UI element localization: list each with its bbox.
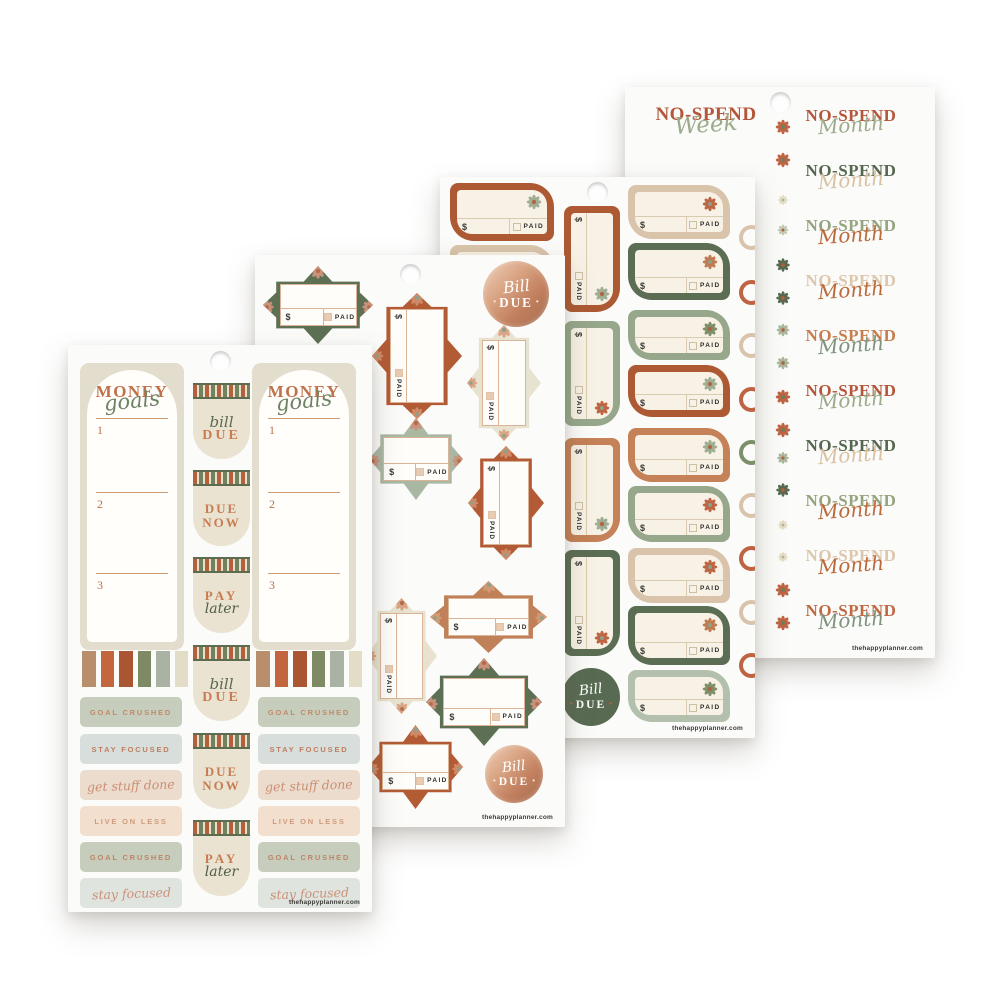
washi-stripe	[293, 651, 307, 687]
price-tag-inner: $PAID	[635, 435, 723, 475]
phrase-label-sticker: get stuff done	[80, 770, 182, 800]
paid-cell: PAID	[686, 395, 723, 410]
flower-icon	[410, 407, 424, 421]
badge-inner: $PAID	[382, 744, 449, 789]
paid-cell: PAID	[686, 460, 723, 475]
dollar-sign: $	[454, 622, 459, 632]
flower-icon	[428, 611, 442, 625]
paid-checkbox	[395, 369, 403, 377]
section-number: 3	[97, 578, 103, 593]
paid-label: PAID	[700, 464, 721, 471]
no-spend-month-sticker: NO-SPENDMonth	[801, 272, 901, 298]
paid-checkbox	[689, 464, 697, 472]
phrase-label-sticker: stay focused	[80, 878, 182, 908]
washi-stripe	[175, 651, 189, 687]
section-number: 3	[269, 578, 275, 593]
paid-checkbox	[689, 647, 697, 655]
brand-url: thehappyplanner.com	[289, 899, 360, 906]
paid-checkbox	[575, 386, 583, 394]
dollar-sign: $	[640, 703, 645, 713]
dollar-sign: $	[389, 467, 394, 477]
paid-group: PAID	[395, 369, 403, 398]
phrase-label-sticker: get stuff done	[258, 770, 360, 800]
dollar-sign: $	[462, 222, 467, 232]
flower-icon	[777, 357, 790, 370]
brand-url: thehappyplanner.com	[482, 814, 553, 821]
paid-group: PAID	[575, 272, 583, 301]
paid-label: PAID	[487, 402, 494, 421]
price-row: $PAID	[635, 580, 723, 596]
no-spend-month-sticker: NO-SPENDMonth	[801, 327, 901, 353]
section-line	[96, 492, 168, 493]
paid-checkbox	[575, 502, 583, 510]
edge-ring-sticker	[739, 493, 755, 518]
paid-label: PAID	[524, 223, 545, 230]
price-tag-vertical: $PAID	[564, 550, 620, 656]
paid-label: PAID	[575, 282, 582, 301]
phrase-label-sticker: STAY FOCUSED	[258, 734, 360, 764]
edge-ring-sticker	[739, 653, 755, 678]
amount-cell: $	[635, 338, 686, 353]
dollar-sign: $	[640, 523, 645, 533]
punch-hole	[770, 92, 791, 113]
mosaic-band	[193, 383, 250, 399]
tab-body: PAYlater	[193, 836, 250, 896]
edge-ring-sticker	[739, 546, 755, 571]
tab-sticker-due-now: DUENOW	[193, 733, 250, 809]
price-tag-inner: $PAID	[635, 677, 723, 715]
no-spend-week-sticker: NO-SPENDWeek	[640, 105, 772, 134]
amount-cell: $	[635, 217, 686, 232]
price-tag-inner: $PAID	[635, 317, 723, 353]
flower-icon	[778, 520, 788, 530]
flower-icon	[499, 548, 513, 562]
paid-cell: PAID	[490, 709, 524, 725]
paid-label: PAID	[385, 675, 392, 694]
tab-sticker-bill-due: billDUE	[193, 645, 250, 721]
price-tag-inner: $PAID	[571, 328, 613, 419]
flower-icon	[452, 454, 466, 468]
paid-group: PAID	[575, 386, 583, 415]
flower-icon	[464, 377, 477, 390]
flower-icon	[776, 423, 791, 438]
paid-checkbox	[513, 223, 521, 231]
price-tag-vertical: $PAID	[564, 438, 620, 542]
bill-due-circle: Bill•DUE•	[483, 261, 549, 327]
price-tag-horizontal: $PAID	[628, 185, 730, 239]
amount-cell: $	[635, 278, 686, 293]
washi-stripe	[101, 651, 115, 687]
badge-tag: $PAID	[372, 293, 462, 419]
price-row: $PAID	[635, 699, 723, 715]
flower-icon	[776, 390, 791, 405]
flower-icon	[595, 287, 610, 302]
paid-label: PAID	[700, 399, 721, 406]
bill-script: Bill	[502, 760, 527, 776]
paid-cell: PAID	[686, 643, 723, 658]
price-row: $PAID	[383, 772, 448, 789]
section-number: 1	[97, 423, 103, 438]
tab-line1: DUE	[205, 765, 238, 779]
tab-line1: DUE	[205, 502, 238, 516]
no-spend-month-sticker: NO-SPENDMonth	[801, 602, 901, 628]
tab-body: billDUE	[193, 399, 250, 459]
price-tag-inner: $PAID	[571, 445, 613, 535]
paid-checkbox	[575, 616, 583, 624]
paid-label: PAID	[700, 585, 721, 592]
amount-strip: $PAID	[571, 445, 587, 535]
mosaic-band	[193, 733, 250, 749]
paid-cell: PAID	[495, 619, 529, 635]
badge-tag: $PAID	[426, 658, 542, 746]
badge-inner: $PAID	[443, 678, 524, 726]
washi-stripe	[156, 651, 170, 687]
amount-cell: $	[444, 709, 490, 725]
paid-label: PAID	[575, 512, 582, 531]
no-spend-month-sticker: NO-SPENDMonth	[801, 492, 901, 518]
washi-strip-sticker	[78, 651, 192, 687]
amount-cell: $	[449, 619, 495, 635]
flower-icon	[778, 225, 789, 236]
price-tag-horizontal: $PAID	[628, 365, 730, 417]
due-word: DUE	[499, 776, 529, 788]
paid-cell: PAID	[686, 700, 723, 715]
flower-icon	[776, 153, 791, 168]
edge-ring-sticker	[739, 280, 755, 305]
bill-due-circle: Bill•DUE•	[562, 668, 620, 726]
tab-line2: later	[205, 865, 238, 880]
badge-inner: $PAID	[483, 461, 529, 545]
phrase-label-sticker: LIVE ON LESS	[80, 806, 182, 836]
paid-cell: PAID	[686, 338, 723, 353]
paid-checkbox	[385, 665, 393, 673]
flower-icon	[362, 300, 376, 314]
phrase-text: LIVE ON LESS	[94, 817, 167, 826]
paid-checkbox	[575, 272, 583, 280]
paid-cell: PAID	[686, 278, 723, 293]
badge-inner: $PAID	[280, 284, 357, 326]
tab-line2: NOW	[202, 516, 241, 530]
flower-icon	[703, 498, 718, 513]
price-row: $PAID	[457, 218, 547, 234]
paid-label: PAID	[427, 469, 448, 476]
due-word-row: •DUE•	[493, 296, 538, 309]
flower-icon	[498, 443, 514, 459]
price-tag-horizontal: $PAID	[628, 486, 730, 542]
tab-body: PAYlater	[193, 573, 250, 633]
phrase-text: get stuff done	[87, 776, 175, 794]
paid-label: PAID	[575, 396, 582, 415]
paid-checkbox	[492, 713, 500, 721]
mosaic-band	[193, 557, 250, 573]
badge-inner: $PAID	[383, 437, 449, 481]
due-word-row: •DUE•	[570, 699, 612, 711]
paid-group: PAID	[488, 511, 496, 540]
amount-strip: $PAID	[381, 614, 397, 698]
badge-inner: $PAID	[390, 309, 444, 402]
flower-icon	[394, 595, 410, 611]
tab-line2: DUE	[202, 429, 241, 444]
amount-cell: $	[635, 395, 686, 410]
paid-cell: PAID	[415, 773, 448, 789]
bill-script: Bill	[502, 278, 530, 297]
flower-icon	[465, 497, 478, 510]
flower-icon	[595, 517, 610, 532]
punch-hole	[587, 182, 608, 203]
price-row: $PAID	[444, 708, 523, 725]
phrase-label-sticker: STAY FOCUSED	[80, 734, 182, 764]
phrase-label-sticker: LIVE ON LESS	[258, 806, 360, 836]
flower-icon	[424, 697, 438, 711]
phrase-label-sticker: GOAL CRUSHED	[80, 842, 182, 872]
dollar-sign: $	[485, 345, 495, 350]
phrase-text: STAY FOCUSED	[92, 745, 171, 754]
paid-label: PAID	[700, 221, 721, 228]
paid-cell: PAID	[686, 581, 723, 596]
no-spend-month-sticker: NO-SPENDMonth	[801, 437, 901, 463]
paid-checkbox	[689, 399, 697, 407]
flower-icon	[776, 291, 790, 305]
washi-stripe	[330, 651, 344, 687]
tab-body: billDUE	[193, 661, 250, 721]
paid-checkbox	[486, 392, 494, 400]
price-row: $PAID	[635, 642, 723, 658]
washi-stripe	[312, 651, 326, 687]
due-word: DUE	[499, 296, 533, 309]
paid-checkbox	[488, 511, 496, 519]
dollar-sign: $	[574, 449, 584, 454]
phrase-label-sticker: GOAL CRUSHED	[258, 697, 360, 727]
amount-cell: $	[635, 520, 686, 535]
washi-stripe	[275, 651, 289, 687]
section-line	[268, 573, 340, 574]
paid-checkbox	[689, 704, 697, 712]
amount-strip: $PAID	[391, 310, 407, 401]
flower-icon	[776, 483, 790, 497]
price-row: $PAID	[384, 463, 448, 480]
flower-icon	[703, 440, 718, 455]
flower-icon	[776, 616, 791, 631]
badge-inner: $PAID	[448, 598, 530, 637]
amount-strip: $PAID	[571, 557, 587, 649]
dollar-sign: $	[640, 646, 645, 656]
no-spend-month-sticker: NO-SPENDMonth	[801, 162, 901, 188]
brand-url: thehappyplanner.com	[672, 725, 743, 732]
amount-cell: $	[635, 643, 686, 658]
price-tag-inner: $PAID	[635, 250, 723, 293]
due-word-row: •DUE•	[493, 776, 535, 788]
price-tag-inner: $PAID	[571, 213, 613, 305]
flower-icon	[703, 682, 718, 697]
paid-checkbox	[689, 282, 697, 290]
dollar-sign: $	[384, 618, 394, 623]
price-tag-inner: $PAID	[635, 613, 723, 658]
amount-cell: $	[635, 700, 686, 715]
no-spend-month-sticker: NO-SPENDMonth	[801, 547, 901, 573]
price-row: $PAID	[635, 216, 723, 232]
price-tag-inner: $PAID	[635, 493, 723, 535]
price-row: $PAID	[281, 308, 356, 325]
flower-icon	[408, 722, 424, 738]
price-tag-inner: $PAID	[635, 372, 723, 410]
paid-group: PAID	[385, 665, 393, 694]
paid-cell: PAID	[686, 217, 723, 232]
flower-icon	[476, 655, 492, 671]
mosaic-band	[193, 645, 250, 661]
paid-cell: PAID	[686, 520, 723, 535]
tab-sticker-due-now: DUENOW	[193, 470, 250, 546]
flower-icon	[703, 377, 718, 392]
badge-tag: $PAID	[368, 725, 463, 809]
flower-icon	[777, 452, 789, 464]
money-goals-sticker: MONEYgoals123	[80, 363, 184, 650]
dollar-sign: $	[640, 463, 645, 473]
washi-stripe	[138, 651, 152, 687]
price-tag-horizontal: $PAID	[628, 243, 730, 300]
tab-line2: NOW	[202, 779, 241, 793]
badge-tag: $PAID	[430, 581, 547, 653]
dollar-sign: $	[574, 561, 584, 566]
price-row: $PAID	[635, 394, 723, 410]
paid-group: PAID	[575, 616, 583, 645]
price-tag-vertical: $PAID	[564, 321, 620, 426]
price-tag-horizontal: $PAID	[628, 548, 730, 603]
tab-sticker-pay-later: PAYlater	[193, 557, 250, 633]
badge-tag: $PAID	[263, 266, 373, 344]
amount-strip: $PAID	[571, 213, 587, 305]
amount-cell: $	[457, 219, 509, 234]
amount-cell: $	[384, 464, 415, 480]
section-number: 1	[269, 423, 275, 438]
paid-checkbox	[324, 313, 332, 321]
badge-tag: $PAID	[369, 418, 463, 500]
paid-cell: PAID	[415, 464, 448, 480]
flower-icon	[310, 263, 326, 279]
flower-icon	[776, 120, 791, 135]
dollar-sign: $	[640, 220, 645, 230]
tab-body: DUENOW	[193, 749, 250, 809]
sticker-sheets-canvas: NO-SPENDWeekNO-SPENDMonthNO-SPENDMonthNO…	[0, 0, 1000, 1000]
paid-label: PAID	[700, 524, 721, 531]
flower-icon	[395, 702, 409, 716]
flower-icon	[777, 324, 790, 337]
dollar-sign: $	[640, 341, 645, 351]
phrase-text: get stuff done	[265, 776, 353, 794]
phrase-text: GOAL CRUSHED	[268, 708, 350, 717]
paid-label: PAID	[503, 713, 524, 720]
phrase-text: GOAL CRUSHED	[268, 853, 350, 862]
section-number: 2	[269, 497, 275, 512]
washi-stripe	[256, 651, 270, 687]
flower-icon	[703, 197, 718, 212]
badge-inner: $PAID	[482, 340, 526, 426]
phrase-text: LIVE ON LESS	[272, 817, 345, 826]
section-line	[268, 418, 340, 419]
dollar-sign: $	[640, 281, 645, 291]
no-spend-month-sticker: NO-SPENDMonth	[801, 107, 901, 133]
paid-label: PAID	[700, 342, 721, 349]
dollar-sign: $	[394, 314, 404, 319]
dollar-sign: $	[574, 332, 584, 337]
washi-stripe	[119, 651, 133, 687]
flower-icon	[703, 322, 718, 337]
dollar-sign: $	[640, 398, 645, 408]
price-tag-horizontal: $PAID	[628, 670, 730, 722]
badge-tag: $PAID	[468, 446, 544, 560]
paid-cell: PAID	[509, 219, 547, 234]
flower-icon	[409, 290, 425, 306]
edge-ring-sticker	[739, 440, 755, 465]
price-tag-horizontal: $PAID	[628, 428, 730, 482]
edge-ring-sticker	[739, 387, 755, 412]
paid-checkbox	[416, 468, 424, 476]
phrase-text: STAY FOCUSED	[270, 745, 349, 754]
section-line	[96, 418, 168, 419]
sheet-money-goals: MONEYgoals123MONEYgoals123billDUEDUENOWP…	[68, 345, 372, 912]
edge-ring-sticker	[739, 225, 755, 250]
dollar-sign: $	[286, 312, 291, 322]
washi-stripe	[82, 651, 96, 687]
phrase-text: GOAL CRUSHED	[90, 708, 172, 717]
bill-script: Bill	[579, 683, 604, 699]
no-spend-month-sticker: NO-SPENDMonth	[801, 217, 901, 243]
dollar-sign: $	[574, 217, 584, 222]
paid-checkbox	[416, 777, 424, 785]
price-row: $PAID	[635, 459, 723, 475]
flower-icon	[703, 618, 718, 633]
dollar-sign: $	[487, 466, 497, 471]
brand-url: thehappyplanner.com	[852, 645, 923, 652]
paid-label: PAID	[395, 379, 402, 398]
phrase-text: GOAL CRUSHED	[90, 853, 172, 862]
tab-sticker-pay-later: PAYlater	[193, 820, 250, 896]
amount-cell: $	[383, 773, 415, 789]
amount-cell: $	[635, 581, 686, 596]
bill-due-circle: Bill•DUE•	[485, 745, 543, 803]
price-tag-inner: $PAID	[457, 190, 547, 234]
tab-line2: later	[205, 602, 238, 617]
price-row: $PAID	[635, 519, 723, 535]
paid-label: PAID	[427, 777, 448, 784]
amount-cell: $	[635, 460, 686, 475]
paid-label: PAID	[575, 626, 582, 645]
flower-icon	[595, 631, 610, 646]
amount-cell: $	[281, 309, 323, 325]
tab-line2: DUE	[202, 691, 241, 706]
due-word: DUE	[576, 699, 606, 711]
washi-stripe	[349, 651, 363, 687]
dollar-sign: $	[640, 584, 645, 594]
price-tag-horizontal: $PAID	[628, 310, 730, 360]
section-number: 2	[97, 497, 103, 512]
paid-checkbox	[689, 585, 697, 593]
paid-group: PAID	[575, 502, 583, 531]
paid-label: PAID	[335, 314, 356, 321]
tab-body: DUENOW	[193, 486, 250, 546]
section-line	[96, 573, 168, 574]
price-tag-horizontal: $PAID	[628, 606, 730, 665]
money-goals-sticker: MONEYgoals123	[252, 363, 356, 650]
price-tag-vertical: $PAID	[564, 206, 620, 312]
amount-strip: $PAID	[484, 462, 500, 544]
section-line	[268, 492, 340, 493]
edge-ring-sticker	[739, 333, 755, 358]
punch-hole	[400, 264, 421, 285]
phrase-label-sticker: GOAL CRUSHED	[80, 697, 182, 727]
flower-icon	[778, 552, 788, 562]
paid-label: PAID	[700, 282, 721, 289]
paid-checkbox	[689, 221, 697, 229]
